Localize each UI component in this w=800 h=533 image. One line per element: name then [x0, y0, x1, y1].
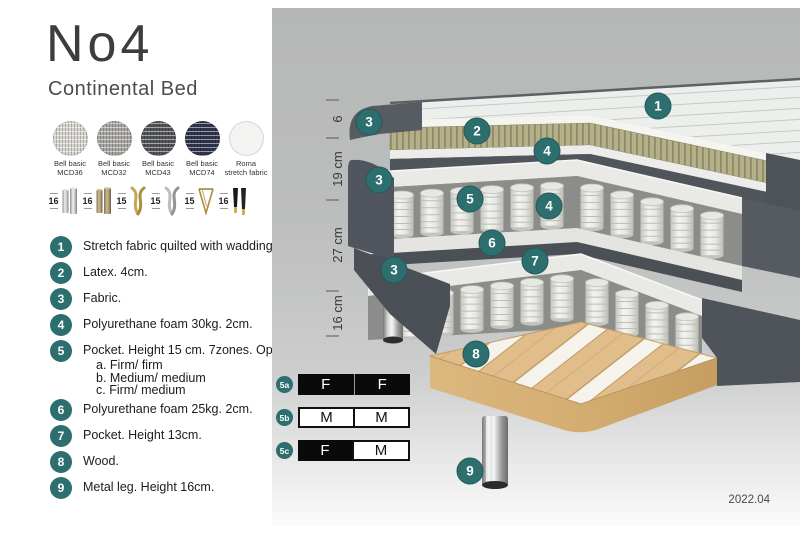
spec-text: Pocket. Height 15 cm. 7zones. Option:	[83, 344, 296, 357]
leg-option-hairpin: 15	[183, 186, 217, 216]
firmness-cell: M	[352, 440, 410, 461]
spec-number-badge: 4	[50, 314, 72, 336]
callout-9: 9	[457, 458, 483, 484]
svg-text:9: 9	[466, 464, 474, 479]
leg-option-black-gold: 16	[217, 186, 251, 216]
callout-3-top: 3	[356, 109, 382, 135]
fabric-swatch-mcd43: Bell basicMCD43	[136, 121, 180, 177]
leg-height-label: 15	[184, 196, 194, 206]
spec-item-5: 5 Pocket. Height 15 cm. 7zones. Option: …	[50, 340, 265, 395]
svg-text:3: 3	[365, 115, 373, 130]
firmness-bar: M M	[298, 407, 410, 428]
spec-text: Pocket. Height 13cm.	[83, 429, 202, 442]
measure-16cm: 16 cm	[330, 295, 345, 330]
leg-height-label: 15	[150, 196, 160, 206]
fabric-swatch-mcd32: Bell basicMCD32	[92, 121, 136, 177]
fabric-swatch-label: Bell basicMCD74	[186, 160, 218, 177]
fabric-swatch-circle	[141, 121, 176, 156]
firmness-cell: M	[353, 407, 410, 428]
fabric-swatch-circle	[229, 121, 264, 156]
spec-options: a. Firm/ firm b. Medium/ medium c. Firm/…	[96, 359, 296, 397]
spec-number-badge: 3	[50, 288, 72, 310]
spec-item-2: 2 Latex. 4cm.	[50, 262, 265, 284]
spec-text: Polyurethane foam 25kg. 2cm.	[83, 403, 253, 416]
callout-8: 8	[463, 341, 489, 367]
product-title: No4	[46, 14, 153, 74]
callout-3-bottom: 3	[381, 257, 407, 283]
firmness-options: 5a F F 5b M M 5c F M	[276, 374, 410, 473]
svg-text:4: 4	[545, 199, 553, 214]
front-leg	[482, 416, 508, 489]
spec-text: Polyurethane foam 30kg. 2cm.	[83, 318, 253, 331]
spec-list: 1 Stretch fabric quilted with wadding. 2…	[50, 236, 265, 503]
leg-hairpin-icon	[196, 186, 216, 216]
spec-item-1: 1 Stretch fabric quilted with wadding.	[50, 236, 265, 258]
svg-text:5: 5	[466, 192, 474, 207]
spec-number-badge: 6	[50, 399, 72, 421]
spec-item-7: 7 Pocket. Height 13cm.	[50, 425, 265, 447]
firmness-row-5c: 5c F M	[276, 440, 410, 461]
svg-text:8: 8	[472, 347, 480, 362]
measure-19cm: 19 cm	[330, 151, 345, 186]
leg-option-bronze: 16	[81, 186, 115, 216]
spec-number-badge: 1	[50, 236, 72, 258]
fabric-swatch-roma: Romastretch fabric	[224, 121, 268, 177]
measure-27cm: 27 cm	[330, 227, 345, 262]
leg-tapered-black-gold-icon	[230, 186, 250, 216]
firmness-badge-5a: 5a	[276, 376, 293, 393]
leg-twisted-gold-icon	[128, 186, 148, 216]
leg-twisted-silver-icon	[162, 186, 182, 216]
callout-4-upper: 4	[534, 138, 560, 164]
svg-text:7: 7	[531, 254, 539, 269]
firmness-cell: M	[298, 407, 355, 428]
fabric-swatch-mcd74: Bell basicMCD74	[180, 121, 224, 177]
fabric-swatch-circle	[53, 121, 88, 156]
spec-number-badge: 5	[50, 340, 72, 362]
spec-number-badge: 7	[50, 425, 72, 447]
firmness-cell: F	[298, 374, 354, 395]
spec-text: Latex. 4cm.	[83, 266, 148, 279]
version-stamp: 2022.04	[700, 494, 770, 506]
spec-number-badge: 2	[50, 262, 72, 284]
leg-height-label: 16	[82, 196, 92, 206]
fabric-swatch-mcd36: Bell basicMCD36	[48, 121, 92, 177]
svg-text:4: 4	[543, 144, 551, 159]
leg-options-row: 16 16 15 15 15	[47, 186, 251, 216]
firmness-badge-5c: 5c	[276, 442, 293, 459]
spec-text: Stretch fabric quilted with wadding.	[83, 240, 276, 253]
firmness-badge-5b: 5b	[276, 409, 293, 426]
callout-6: 6	[479, 230, 505, 256]
firmness-cell: F	[355, 374, 411, 395]
spec-text: Wood.	[83, 455, 119, 468]
fabric-swatch-label: Bell basicMCD43	[142, 160, 174, 177]
callout-4-lower: 4	[536, 193, 562, 219]
fabric-swatch-circle	[97, 121, 132, 156]
fabric-swatch-circle	[185, 121, 220, 156]
firmness-row-5b: 5b M M	[276, 407, 410, 428]
callout-3-middle: 3	[366, 167, 392, 193]
spec-item-9: 9 Metal leg. Height 16cm.	[50, 477, 265, 499]
svg-text:6: 6	[488, 236, 496, 251]
callout-7: 7	[522, 248, 548, 274]
fabric-swatch-label: Bell basicMCD32	[98, 160, 130, 177]
svg-text:3: 3	[375, 173, 383, 188]
spec-number-badge: 8	[50, 451, 72, 473]
measurement-labels: 6 19 cm 27 cm 16 cm	[330, 115, 345, 330]
svg-text:1: 1	[654, 99, 662, 114]
leg-option-twisted-gold: 15	[115, 186, 149, 216]
measure-6: 6	[330, 115, 345, 122]
callout-5: 5	[457, 186, 483, 212]
leg-option-twisted-silver: 15	[149, 186, 183, 216]
spec-item-6: 6 Polyurethane foam 25kg. 2cm.	[50, 399, 265, 421]
callout-2: 2	[464, 118, 490, 144]
callout-1: 1	[645, 93, 671, 119]
leg-height-label: 15	[116, 196, 126, 206]
fabric-swatch-label: Romastretch fabric	[225, 160, 268, 177]
fabric-swatch-label: Bell basicMCD36	[54, 160, 86, 177]
firmness-bar: F M	[298, 440, 410, 461]
svg-text:3: 3	[390, 263, 398, 278]
spec-item-8: 8 Wood.	[50, 451, 265, 473]
fabric-swatch-row: Bell basicMCD36 Bell basicMCD32 Bell bas…	[48, 121, 268, 177]
svg-text:2: 2	[473, 124, 481, 139]
leg-height-label: 16	[218, 196, 228, 206]
spec-item-4: 4 Polyurethane foam 30kg. 2cm.	[50, 314, 265, 336]
leg-option-chrome: 16	[47, 186, 81, 216]
spec-text: Fabric.	[83, 292, 121, 305]
leg-height-label: 16	[48, 196, 58, 206]
firmness-row-5a: 5a F F	[276, 374, 410, 395]
spec-item-3: 3 Fabric.	[50, 288, 265, 310]
firmness-cell: F	[298, 440, 352, 461]
firmness-bar: F F	[298, 374, 410, 395]
spec-number-badge: 9	[50, 477, 72, 499]
leg-cylinder-chrome-icon	[60, 186, 80, 216]
product-subtitle: Continental Bed	[48, 78, 198, 101]
spec-text: Metal leg. Height 16cm.	[83, 481, 214, 494]
leg-cylinder-bronze-icon	[94, 186, 114, 216]
